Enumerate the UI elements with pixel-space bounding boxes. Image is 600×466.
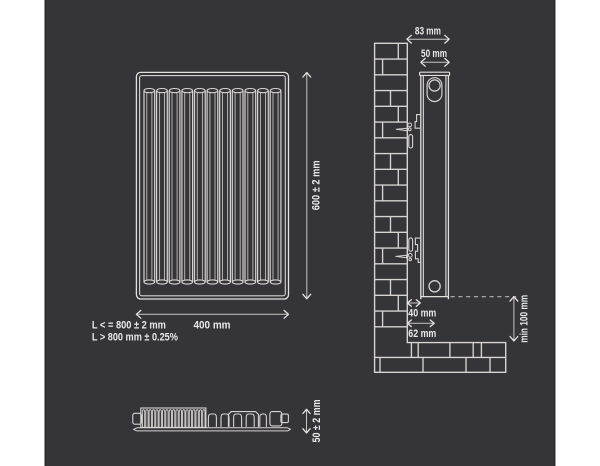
svg-text:62 mm: 62 mm: [408, 328, 436, 340]
svg-text:83 mm: 83 mm: [415, 26, 441, 38]
svg-text:L < = 800 ± 2 mm: L < = 800 ± 2 mm: [92, 319, 166, 331]
svg-text:40 mm: 40 mm: [408, 307, 436, 319]
svg-text:400 mm: 400 mm: [194, 319, 231, 331]
svg-text:L > 800 mm ± 0.25%: L > 800 mm ± 0.25%: [92, 331, 178, 343]
svg-text:min 100 mm: min 100 mm: [518, 295, 530, 343]
svg-text:50 ± 2 mm: 50 ± 2 mm: [311, 399, 323, 442]
svg-text:600 ± 2 mm: 600 ± 2 mm: [311, 160, 323, 210]
